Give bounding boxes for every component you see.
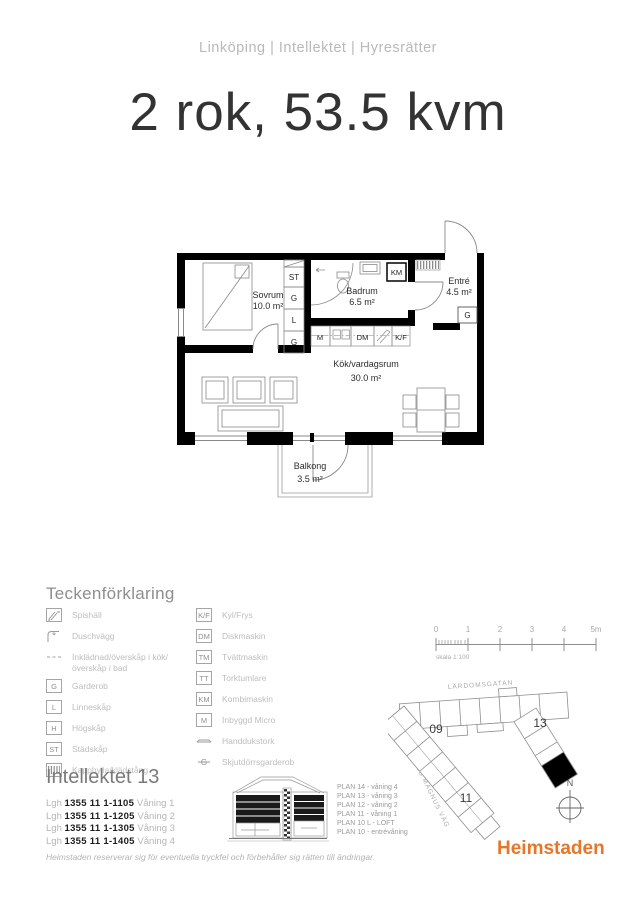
footer-disclaimer: Heimstaden reserverar sig för eventuella… <box>46 852 375 862</box>
plan-list-item: PLAN 10 - entrévåning <box>337 828 408 837</box>
room-label-kok: Kök/vardagsrum <box>333 359 399 369</box>
legend-item: M Inbyggd Micro <box>196 713 336 728</box>
apartment-row: Lgh 1355 11 1-1305 Våning 3 <box>46 823 175 836</box>
km-label: KM <box>391 268 402 277</box>
kitchen-kf-label: K/F <box>395 333 407 342</box>
room-area-kok: 30.0 m² <box>351 373 382 383</box>
hogskap-icon: H <box>46 721 62 735</box>
towel-rail-icon <box>196 734 212 748</box>
legend-item: Handdukstork <box>196 734 336 749</box>
km-box: KM <box>387 263 406 281</box>
plan-list-item: PLAN 14 - våning 4 <box>337 783 408 792</box>
apartment-row: Lgh 1355 11 1-1405 Våning 4 <box>46 836 175 849</box>
room-area-badrum: 6.5 m² <box>349 297 375 307</box>
room-label-entre: Entré <box>448 276 470 286</box>
balcony-door-post <box>310 433 314 442</box>
compass <box>556 790 584 823</box>
kitchen-dm-label: DM <box>357 333 369 342</box>
bedroom-door <box>253 324 278 349</box>
wc-tank <box>337 272 349 278</box>
apartment-floor: Våning 4 <box>137 836 175 847</box>
scale-tick-4: 4 <box>562 625 567 634</box>
tvattmaskin-icon: TM <box>196 650 212 664</box>
kombimaskin-icon: KM <box>196 692 212 706</box>
entre-g-label: G <box>464 311 470 320</box>
building-number-13: 13 <box>533 716 547 730</box>
sliding-wardrobe-icon: G <box>196 755 212 769</box>
apartment-number: 1355 11 1-1205 <box>65 811 135 822</box>
apartment-section: Intellektet 13 Lgh 1355 11 1-1105 Våning… <box>46 766 175 848</box>
building-number-11: 11 <box>460 791 473 805</box>
legend-column-right: K/F Kyl/Frys DM Diskmaskin TM Tvättmaski… <box>196 608 336 776</box>
plan-list-item: PLAN 10 L - LOFT <box>337 819 408 828</box>
apartment-number: 1355 11 1-1305 <box>65 823 135 834</box>
entrance-door <box>445 221 477 253</box>
room-area-balkong: 3.5 m² <box>297 474 323 484</box>
shower-arrow <box>316 268 325 272</box>
apartment-floor: Våning 2 <box>137 811 175 822</box>
apartment-row: Lgh 1355 11 1-1205 Våning 2 <box>46 811 175 824</box>
sofa-group <box>202 377 297 431</box>
site-plan: LÄRDOMSGATAN JOHANNES MAGNUS VÄG <box>388 676 623 851</box>
stove-symbol <box>377 330 390 343</box>
closet-g1-label: G <box>291 294 297 303</box>
micro-icon: M <box>196 713 212 727</box>
room-label-sovrum: Sovrum <box>252 290 283 300</box>
floorplan-sheet: Linköping | Intellektet | Hyresrätter 2 … <box>0 0 636 900</box>
scale-tick-3: 3 <box>530 625 535 634</box>
plan-list-item: PLAN 11 - våning 1 <box>337 810 408 819</box>
legend-item: K/F Kyl/Frys <box>196 608 336 623</box>
legend-item: G Skjutdörrsgarderob <box>196 755 336 770</box>
linneskap-icon: L <box>46 700 62 714</box>
stove-icon <box>46 608 62 622</box>
legend-column-left: Spishäll Duschvägg Inklädnad/överskåp i … <box>46 608 194 784</box>
legend-item: Duschvägg <box>46 629 194 644</box>
breadcrumb: Linköping | Intellektet | Hyresrätter <box>0 40 636 56</box>
room-label-badrum: Badrum <box>346 286 378 296</box>
plan-list-item: PLAN 13 - våning 3 <box>337 792 408 801</box>
coat-rack-hatch <box>416 260 440 270</box>
entre-closet: G <box>458 307 477 323</box>
plan-list-item: PLAN 12 - våning 2 <box>337 801 408 810</box>
apartment-number: 1355 11 1-1405 <box>65 836 135 847</box>
garderob-icon: G <box>46 679 62 693</box>
legend-item: G Garderob <box>46 679 194 694</box>
scale-tick-1: 1 <box>466 625 471 634</box>
scale-tick-5: 5m <box>590 625 601 634</box>
legend-item: Inklädnad/överskåp i kök/överskåp i bad <box>46 650 194 673</box>
apartment-floor: Våning 1 <box>137 798 175 809</box>
stadskap-icon: ST <box>46 742 62 756</box>
plan-list: PLAN 14 - våning 4 PLAN 13 - våning 3 PL… <box>337 783 408 837</box>
building-title: Intellektet 13 <box>46 766 175 789</box>
scale-bar: 0 1 2 3 4 5m skala 1:100 <box>425 622 605 664</box>
closet-l-label: L <box>292 316 297 325</box>
floorplan-drawing: ST G L G KM G <box>158 210 498 505</box>
heimstaden-logo: Heimstaden <box>497 838 605 860</box>
apartment-number: 1355 11 1-1105 <box>65 798 135 809</box>
dashed-line-icon <box>46 650 62 664</box>
legend-item: KM Kombimaskin <box>196 692 336 707</box>
kylfrys-icon: K/F <box>196 608 212 622</box>
legend-item: L Linneskåp <box>46 700 194 715</box>
legend-item: ST Städskåp <box>46 742 194 757</box>
closet-g2-label: G <box>291 338 297 347</box>
dining-set <box>403 388 459 432</box>
room-area-entre: 4.5 m² <box>446 287 472 297</box>
shower-icon <box>46 629 62 643</box>
bathroom-door <box>415 282 443 310</box>
scale-label: skala 1:100 <box>436 654 470 661</box>
compass-n-label: N <box>567 778 574 788</box>
apartment-row: Lgh 1355 11 1-1105 Våning 1 <box>46 798 175 811</box>
scale-tick-2: 2 <box>498 625 503 634</box>
room-label-balkong: Balkong <box>294 461 327 471</box>
closet-st-label: ST <box>289 273 299 282</box>
building-number-09: 09 <box>429 722 443 736</box>
legend-item: DM Diskmaskin <box>196 629 336 644</box>
balcony-outline <box>278 445 372 497</box>
bed <box>203 263 252 330</box>
legend-item: H Högskåp <box>46 721 194 736</box>
apartment-floor: Våning 3 <box>137 823 175 834</box>
page-title: 2 rok, 53.5 kvm <box>0 82 636 143</box>
building-elevation <box>225 772 330 844</box>
legend-item: TT Torktumlare <box>196 671 336 686</box>
torktumlare-icon: TT <box>196 671 212 685</box>
elevation-stairwell <box>286 789 289 839</box>
legend-item: TM Tvättmaskin <box>196 650 336 665</box>
diskmaskin-icon: DM <box>196 629 212 643</box>
legend-title: Teckenförklaring <box>46 584 175 604</box>
room-area-sovrum: 10.0 m² <box>253 301 284 311</box>
scale-tick-0: 0 <box>434 625 439 634</box>
legend-item: Spishäll <box>46 608 194 623</box>
kitchen-m-label: M <box>317 333 323 342</box>
